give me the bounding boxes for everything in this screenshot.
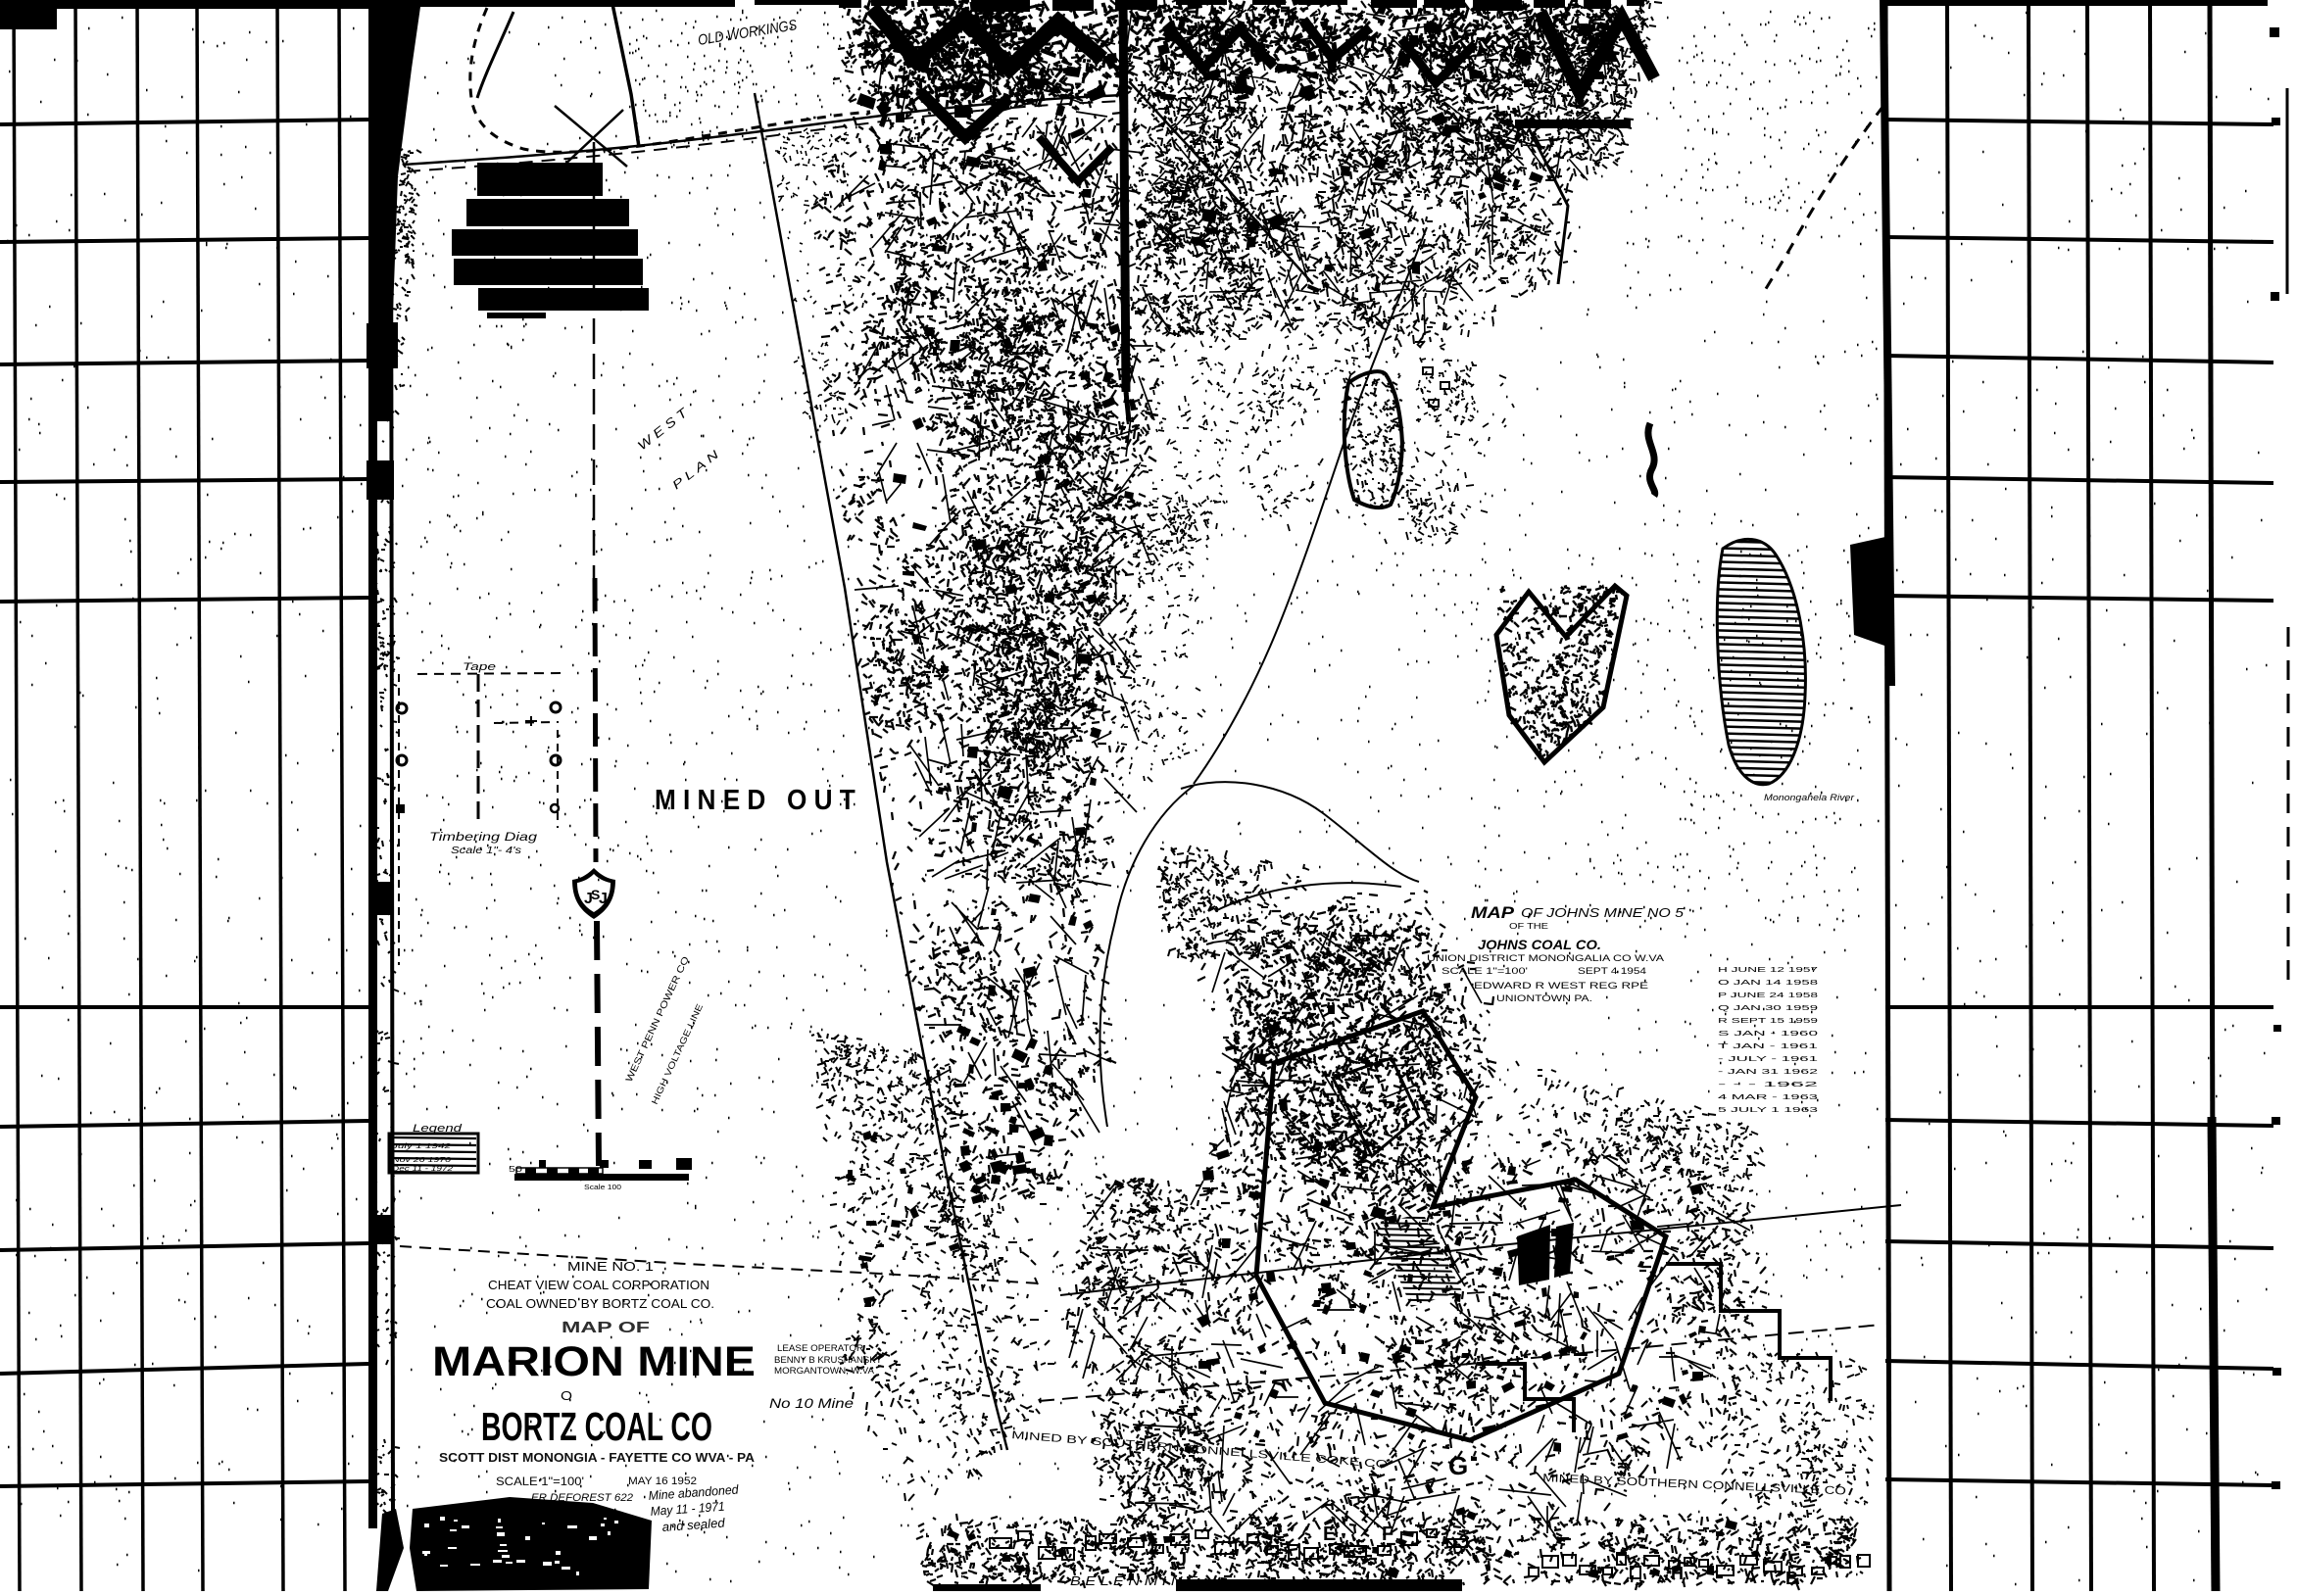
svg-text:B: B (1785, 1569, 1798, 1588)
svg-text:CHEAT VIEW COAL CORPORATION: CHEAT VIEW COAL CORPORATION (488, 1278, 709, 1292)
svg-text:5 JULY 1 1963: 5 JULY 1 1963 (1718, 1105, 1818, 1114)
svg-text:UNION DISTRICT MONONGALI: UNION DISTRICT MONONGALIA CO W.VA (1427, 953, 1665, 964)
svg-text:BENNY B KRUSHANSKY: BENNY B KRUSHANSKY (774, 1355, 883, 1366)
svg-text:P JUNE 24 1958: P JUNE 24 1958 (1718, 991, 1818, 999)
svg-text:OF THE: OF THE (1509, 922, 1548, 931)
svg-text:MARION MINE: MARION MINE (432, 1338, 756, 1385)
svg-text:COAL OWNED BY BORTZ COAL: COAL OWNED BY BORTZ COAL CO. (486, 1296, 714, 1311)
svg-text:July 1 1942: July 1 1942 (390, 1143, 451, 1150)
svg-text:H: H (1671, 1564, 1684, 1583)
svg-text:- JAN 31 1962: - JAN 31 1962 (1718, 1067, 1818, 1076)
svg-text:OF JOHNS MINE NO 5: OF JOHNS MINE NO 5 (1521, 905, 1685, 920)
svg-text:J: J (1176, 1549, 1187, 1571)
svg-text:J: J (599, 891, 608, 907)
svg-text:O: O (561, 1388, 572, 1403)
svg-text:- JULY - 1961: - JULY - 1961 (1718, 1054, 1818, 1063)
svg-text:Timbering Diag: Timbering Diag (429, 830, 537, 844)
svg-text:G: G (1448, 1451, 1468, 1480)
svg-text:No 10 Mine: No 10 Mine (769, 1395, 854, 1411)
svg-text:SCALE 1"=100': SCALE 1"=100' (1442, 966, 1528, 976)
svg-text:F: F (1382, 1523, 1393, 1545)
svg-text:A: A (1744, 1568, 1757, 1587)
svg-text:S JAN - 1960: S JAN - 1960 (1718, 1029, 1818, 1038)
svg-text:MORGANTOWN, W.VA: MORGANTOWN, W.VA (774, 1366, 875, 1377)
svg-text:SCOTT DIST MONONGIA - FAYETT: SCOTT DIST MONONGIA - FAYETTE CO WVA - P… (439, 1450, 756, 1465)
svg-text:SCALE 1"=100': SCALE 1"=100' (496, 1475, 584, 1488)
svg-text:BORTZ COAL CO: BORTZ COAL CO (481, 1404, 712, 1449)
svg-text:EDWARD R WEST REG RPE: EDWARD R WEST REG RPE (1474, 981, 1648, 991)
svg-text:Scale 100: Scale 100 (584, 1183, 621, 1191)
svg-text:Nov 26 1970: Nov 26 1970 (392, 1157, 451, 1164)
svg-text:E: E (1323, 1523, 1336, 1545)
svg-text:MAP OF: MAP OF (562, 1320, 650, 1336)
svg-text:LEASE OPERATOR: LEASE OPERATOR (777, 1343, 863, 1354)
svg-text:4 MAR - 1963: 4 MAR - 1963 (1718, 1092, 1818, 1101)
svg-text:UNIONTOWN PA.: UNIONTOWN PA. (1496, 993, 1592, 1004)
svg-text:50: 50 (509, 1165, 523, 1174)
svg-text:MAP: MAP (1471, 903, 1515, 922)
svg-text:R SEPT 15 1959: R SEPT 15 1959 (1718, 1016, 1818, 1025)
svg-text:Scale 1"- 4's: Scale 1"- 4's (451, 846, 521, 856)
svg-text:JOHNS COAL CO.: JOHNS COAL CO. (1478, 937, 1601, 952)
svg-text:Q JAN 30 1959: Q JAN 30 1959 (1718, 1003, 1818, 1012)
svg-text:MINED OUT: MINED OUT (655, 785, 862, 816)
svg-text:SEPT 4 1954: SEPT 4 1954 (1578, 966, 1646, 976)
svg-text:Tape: Tape (463, 661, 496, 673)
svg-text:Monongahela River: Monongahela River (1764, 793, 1855, 803)
svg-text:- - - 1962: - - - 1962 (1718, 1080, 1818, 1088)
svg-text:O JAN 14 1958: O JAN 14 1958 (1718, 978, 1818, 987)
svg-text:T JAN - 1961: T JAN - 1961 (1718, 1041, 1818, 1050)
svg-text:H JUNE 12 1957: H JUNE 12 1957 (1718, 965, 1818, 974)
svg-text:Dec 11 - 1972: Dec 11 - 1972 (392, 1166, 453, 1173)
